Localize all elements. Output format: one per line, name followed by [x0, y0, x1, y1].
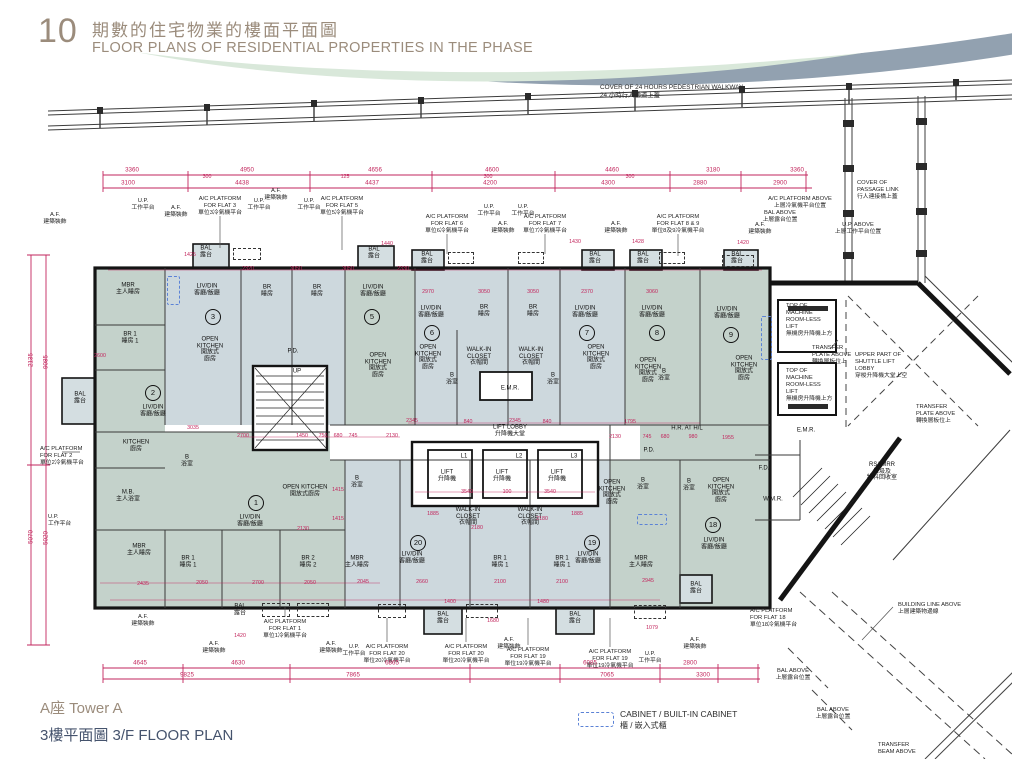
- annotation-label: U.P. 工作平台: [638, 651, 661, 665]
- dimension-value: 4460: [605, 167, 619, 174]
- dimension-value: 9825: [180, 672, 194, 679]
- dimension-value: 2880: [693, 180, 707, 187]
- room-label: B 浴室: [683, 478, 695, 491]
- flat-number: 19: [584, 535, 600, 551]
- room-label: BAL 露台: [437, 611, 449, 624]
- annotation-label: A/C PLATFORM FOR FLAT 3 單位3冷氣機平台: [198, 196, 242, 217]
- ac-platform-outline: [262, 603, 290, 617]
- room-label: OPEN KITCHEN 開放式 廚房: [599, 480, 625, 507]
- room-label: LIV/DIN 客廳/飯廳: [140, 404, 166, 417]
- dimension-value-small: 3035: [187, 425, 199, 431]
- annotation-label: A.F. 建築裝飾: [491, 221, 514, 235]
- brochure-page: 10 期數的住宅物業的樓面平面圖 FLOOR PLANS OF RESIDENT…: [0, 0, 1012, 759]
- room-label: WALK-IN CLOSET 衣帽間: [519, 347, 544, 367]
- dimension-value-small: 300: [626, 174, 635, 180]
- dimension-value-small: 2345: [406, 418, 418, 424]
- dimension-value: 4645: [133, 660, 147, 667]
- dimension-value-small: 2130: [386, 433, 398, 439]
- annotation-label: A/C PLATFORM FOR FLAT 1 單位1冷氣機平台: [263, 619, 307, 640]
- annotation-label: A/C PLATFORM FOR FLAT 8 & 9 單位8及9冷氣機平台: [652, 214, 705, 235]
- annotation-label: COVER OF PASSAGE LINK 行人連接橋上蓋: [857, 180, 899, 201]
- dimension-value: 4630: [231, 660, 245, 667]
- dimension-value-small: 2180: [536, 516, 548, 522]
- room-label: OPEN KITCHEN 開放式 廚房: [731, 356, 757, 383]
- ac-platform-outline: [448, 252, 474, 264]
- room-label: MBR 主人睡房: [345, 555, 369, 568]
- dimension-value-small: 2370: [581, 289, 593, 295]
- annotation-label: U.P. ABOVE 上層工作平台位置: [835, 222, 881, 236]
- flat-number: 2: [145, 385, 161, 401]
- annotation-label: U.P. 工作平台: [342, 644, 365, 658]
- dimension-value-small: 2345: [509, 418, 521, 424]
- room-label: LIV/DIN 客廳/飯廳: [418, 305, 444, 318]
- dimension-value-small: 300: [203, 174, 212, 180]
- room-label: BAL 露台: [200, 245, 212, 258]
- room-label: WALK-IN CLOSET 衣帽間: [467, 347, 492, 367]
- room-label: BR 1 睡房 1: [491, 555, 508, 568]
- plan-labels: MBR 主人睡房BR 1 睡房 1LIV/DIN 客廳/飯廳KITCHEN 廚房…: [0, 0, 1012, 759]
- cabinet-outline: [761, 316, 772, 360]
- ac-platform-outline: [466, 604, 498, 618]
- annotation-label: UPPER PART OF SHUTTLE LIFT LOBBY 穿梭升降機大堂…: [855, 352, 907, 380]
- dimension-value-small: 3060: [646, 289, 658, 295]
- dimension-value-small: 2100: [556, 579, 568, 585]
- annotation-label: A.F. 建築裝飾: [604, 221, 627, 235]
- annotation-label: A/C PLATFORM FOR FLAT 6 單位6冷氣機平台: [425, 214, 469, 235]
- flat-number: 7: [579, 325, 595, 341]
- annotation-label: TOP OF MACHINE ROOM-LESS LIFT 無機房升降機上方: [786, 368, 832, 403]
- annotation-label: A.F. 建築裝飾: [43, 212, 66, 226]
- dimension-value-small: 3050: [342, 266, 354, 272]
- walkway-label: COVER OF 24 HOURS PEDESTRIAN WALKWAY 24 …: [600, 84, 743, 99]
- dimension-value: 4438: [235, 180, 249, 187]
- dimension-value: 3100: [121, 180, 135, 187]
- annotation-label: A.F. 建築裝飾: [264, 188, 287, 202]
- room-label: B 浴室: [637, 477, 649, 490]
- dimension-value-small: 2320: [242, 266, 254, 272]
- dimension-value-small: 1415: [332, 516, 344, 522]
- annotation-label: U.P. 工作平台: [297, 198, 320, 212]
- dimension-value-vertical: 5070: [28, 530, 35, 544]
- room-label: OPEN KITCHEN 開放式 廚房: [583, 345, 609, 372]
- dimension-value-small: 2700: [252, 580, 264, 586]
- room-label: BR 睡房: [311, 284, 323, 297]
- annotation-label: A.F. 建築裝飾: [202, 641, 225, 655]
- dimension-value: 4200: [483, 180, 497, 187]
- room-label: P.D.: [644, 448, 655, 455]
- dimension-value-small: 100: [503, 489, 512, 495]
- annotation-label: A/C PLATFORM FOR FLAT 20 單位20冷氣機平台: [442, 644, 489, 665]
- room-label: B 浴室: [181, 454, 193, 467]
- dimension-value: 3300: [696, 672, 710, 679]
- room-label: MBR 主人睡房: [629, 555, 653, 568]
- room-label: B 浴室: [658, 368, 670, 381]
- tower-title: A座 Tower A: [40, 697, 123, 718]
- dimension-value-small: 1795: [624, 419, 636, 425]
- room-label: L1: [461, 454, 468, 461]
- dimension-value-vertical: 2135: [28, 353, 35, 367]
- cabinet-legend-en: CABINET / BUILT-IN CABINET: [620, 709, 737, 719]
- annotation-label: A.F. 建築裝飾: [131, 614, 154, 628]
- room-label: LIV/DIN 客廳/飯廳: [194, 283, 220, 296]
- room-label: OPEN KITCHEN 開放式 廚房: [365, 353, 391, 380]
- dimension-value-small: 125: [341, 174, 350, 180]
- dimension-value-small: 840: [543, 419, 552, 425]
- room-label: UP: [293, 369, 301, 376]
- room-label: B 浴室: [446, 372, 458, 385]
- room-label: H.R. AT H/L: [671, 426, 702, 433]
- annotation-label: A.F. 建築裝飾: [319, 641, 342, 655]
- annotation-label: TRANSFER BEAM ABOVE: [878, 742, 916, 756]
- annotation-label: TOP OF MACHINE ROOM-LESS LIFT 無機房升降機上方: [786, 303, 832, 338]
- cabinet-outline: [637, 514, 667, 525]
- ac-platform-outline: [634, 605, 666, 619]
- room-label: OPEN KITCHEN 開放式 廚房: [197, 337, 223, 364]
- annotation-label: BAL ABOVE 上層露台位置: [776, 668, 811, 682]
- dimension-value-small: 2180: [471, 525, 483, 531]
- room-label: BAL 露台: [74, 391, 86, 404]
- dimension-value-small: 2435: [137, 581, 149, 587]
- flat-number: 5: [364, 309, 380, 325]
- dimension-value-small: 2050: [304, 580, 316, 586]
- ac-platform-outline: [297, 603, 329, 617]
- cabinet-outline: [167, 276, 180, 305]
- annotation-label: A/C PLATFORM ABOVE 上層冷氣機平台位置: [768, 196, 832, 210]
- room-label: BAL 露台: [569, 611, 581, 624]
- dimension-value-small: 1440: [381, 241, 393, 247]
- dimension-value-small: 1420: [234, 633, 246, 639]
- flat-number: 18: [705, 517, 721, 533]
- dimension-value: 4600: [485, 167, 499, 174]
- ac-platform-outline: [233, 248, 261, 260]
- floor-title: 3樓平面圖 3/F FLOOR PLAN: [40, 724, 233, 745]
- annotation-label: A.F. 建築裝飾: [748, 222, 771, 236]
- annotation-label: A/C PLATFORM FOR FLAT 5 單位5冷氣機平台: [320, 196, 364, 217]
- dimension-value: 7865: [346, 672, 360, 679]
- dimension-value-small: 2660: [416, 579, 428, 585]
- room-label: LIV/DIN 客廳/飯廳: [399, 551, 425, 564]
- dimension-value: 4950: [240, 167, 254, 174]
- dimension-value-small: 980: [689, 434, 698, 440]
- dimension-value-vertical: 9085: [43, 355, 50, 369]
- dimension-value-small: 1430: [569, 239, 581, 245]
- dimension-value: 4656: [368, 167, 382, 174]
- room-label: BAL 露台: [690, 581, 702, 594]
- ac-platform-outline: [722, 255, 754, 267]
- annotation-label: A/C PLATFORM FOR FLAT 7 單位7冷氣機平台: [523, 214, 567, 235]
- annotation-label: A/C PLATFORM FOR FLAT 18 單位18冷氣機平台: [750, 608, 797, 629]
- dimension-value-small: 840: [464, 419, 473, 425]
- room-label: LIV/DIN 客廳/飯廳: [237, 514, 263, 527]
- room-label: BR 1 睡房 1: [121, 331, 138, 344]
- room-label: LIV/DIN 客廳/飯廳: [714, 306, 740, 319]
- ac-platform-outline: [378, 604, 406, 618]
- room-label: BAL 露台: [368, 246, 380, 259]
- dimension-value-small: 3540: [544, 489, 556, 495]
- dimension-value: 4300: [601, 180, 615, 187]
- dimension-value-small: 1885: [571, 511, 583, 517]
- room-label: B 浴室: [351, 475, 363, 488]
- ac-platform-outline: [659, 252, 685, 264]
- dimension-value-small: 1680: [487, 618, 499, 624]
- dimension-value: 4437: [365, 180, 379, 187]
- dimension-value-small: 2050: [196, 580, 208, 586]
- room-label: W.M.R.: [763, 497, 783, 504]
- annotation-label: TRANSFER PLATE ABOVE 轉換層板位上: [916, 404, 955, 425]
- room-label: BAL 露台: [234, 603, 246, 616]
- dimension-value-small: 2945: [642, 578, 654, 584]
- dimension-value-small: 2100: [494, 579, 506, 585]
- annotation-label: BUILDING LINE ABOVE 上層建築物邊線: [898, 602, 961, 616]
- dimension-value: 6865: [385, 660, 399, 667]
- dimension-value-small: 1955: [722, 435, 734, 441]
- annotation-label: U.P. 工作平台: [131, 198, 154, 212]
- room-label: F.D.: [759, 466, 770, 473]
- dimension-value-small: 2970: [422, 289, 434, 295]
- room-label: LIV/DIN 客廳/飯廳: [639, 305, 665, 318]
- dimension-value-small: 1079: [646, 625, 658, 631]
- dimension-value: 3360: [790, 167, 804, 174]
- dimension-value: 2800: [683, 660, 697, 667]
- dimension-value: 7065: [600, 672, 614, 679]
- room-label: BAL 露台: [637, 251, 649, 264]
- dimension-value-small: 1425: [184, 252, 196, 258]
- annotation-label: A.F. 建築裝飾: [164, 205, 187, 219]
- dimension-value-small: 1480: [537, 599, 549, 605]
- annotation-label: U.P. 工作平台: [477, 204, 500, 218]
- dimension-value-vertical: 5020: [43, 531, 50, 545]
- dimension-value-small: 680: [334, 433, 343, 439]
- dimension-value-small: 750: [319, 433, 328, 439]
- annotation-label: TRANSFER PLATE ABOVE 轉換層板位上: [812, 345, 851, 366]
- room-label: BAL 露台: [421, 251, 433, 264]
- flat-number: 1: [248, 495, 264, 511]
- room-label: M.B. 主人浴室: [116, 489, 140, 502]
- flat-number: 20: [410, 535, 426, 551]
- dimension-value-small: 1450: [296, 433, 308, 439]
- room-label: L2: [516, 454, 523, 461]
- dimension-value-small: 3050: [527, 289, 539, 295]
- dimension-value-small: 300: [484, 174, 493, 180]
- annotation-label: A/C PLATFORM FOR FLAT 2 單位2冷氣機平台: [40, 446, 84, 467]
- dimension-value: 3180: [706, 167, 720, 174]
- cabinet-legend-swatch: [578, 712, 614, 727]
- room-label: RS&MRR 垃圾及 物料回收室: [867, 462, 897, 482]
- room-label: B 浴室: [547, 372, 559, 385]
- room-label: BR 2 睡房 2: [299, 555, 316, 568]
- dimension-value-small: 2700: [237, 433, 249, 439]
- room-label: OPEN KITCHEN 開放式 廚房: [415, 345, 441, 372]
- annotation-label: BAL ABOVE 上層露台位置: [816, 707, 851, 721]
- annotation-label: U.P. 工作平台: [48, 514, 71, 528]
- dimension-value-small: 2600: [94, 353, 106, 359]
- room-label: LIFT 升降機: [493, 469, 511, 482]
- flat-number: 8: [649, 325, 665, 341]
- dimension-value-small: 2130: [297, 526, 309, 532]
- dimension-value-small: 745: [349, 433, 358, 439]
- dimension-value: 3360: [125, 167, 139, 174]
- room-label: LIFT 升降機: [438, 469, 456, 482]
- flat-number: 6: [424, 325, 440, 341]
- dimension-value-small: 2045: [357, 579, 369, 585]
- room-label: BR 睡房: [478, 304, 490, 317]
- flat-number: 3: [205, 309, 221, 325]
- dimension-value-small: 2330: [397, 266, 409, 272]
- room-label: BR 1 睡房 1: [179, 555, 196, 568]
- room-label: E.M.R.: [797, 428, 815, 435]
- room-label: OPEN KITCHEN 開放式 廚房: [708, 478, 734, 505]
- room-label: E.M.R.: [501, 386, 519, 393]
- room-label: BAL 露台: [589, 251, 601, 264]
- room-label: LIV/DIN 客廳/飯廳: [572, 305, 598, 318]
- dimension-value-small: 2130: [609, 434, 621, 440]
- dimension-value-small: 1420: [737, 240, 749, 246]
- room-label: LIV/DIN 客廳/飯廳: [360, 284, 386, 297]
- room-label: MBR 主人睡房: [127, 543, 151, 556]
- room-label: OPEN KITCHEN 開放式廚房: [282, 484, 327, 497]
- room-label: BR 1 睡房 1: [553, 555, 570, 568]
- room-label: LIV/DIN 客廳/飯廳: [701, 537, 727, 550]
- dimension-value-small: 1415: [332, 487, 344, 493]
- dimension-value: 6085: [583, 660, 597, 667]
- dimension-value-small: 3540: [461, 489, 473, 495]
- dimension-value-small: 3050: [290, 266, 302, 272]
- room-label: BR 睡房: [261, 284, 273, 297]
- annotation-label: A.F. 建築裝飾: [683, 637, 706, 651]
- room-label: BR 睡房: [527, 304, 539, 317]
- dimension-value-small: 3050: [478, 289, 490, 295]
- room-label: LIFT LOBBY 升降機大堂: [493, 424, 527, 437]
- dimension-value-small: 745: [643, 434, 652, 440]
- dimension-value-small: 680: [661, 434, 670, 440]
- annotation-label: A/C PLATFORM FOR FLAT 19 單位19冷氣機平台: [504, 647, 551, 668]
- ac-platform-outline: [518, 252, 544, 264]
- room-label: P.D.: [288, 349, 299, 356]
- room-label: MBR 主人睡房: [116, 282, 140, 295]
- dimension-value-small: 1428: [632, 239, 644, 245]
- room-label: LIFT 升降機: [548, 469, 566, 482]
- room-label: L3: [571, 454, 578, 461]
- cabinet-legend-zh: 櫃 / 嵌入式櫃: [620, 720, 667, 731]
- room-label: KITCHEN 廚房: [123, 439, 149, 452]
- flat-number: 9: [723, 327, 739, 343]
- dimension-value-small: 1885: [427, 511, 439, 517]
- dimension-value: 2900: [773, 180, 787, 187]
- dimension-value-small: 1400: [444, 599, 456, 605]
- room-label: LIV/DIN 客廳/飯廳: [575, 551, 601, 564]
